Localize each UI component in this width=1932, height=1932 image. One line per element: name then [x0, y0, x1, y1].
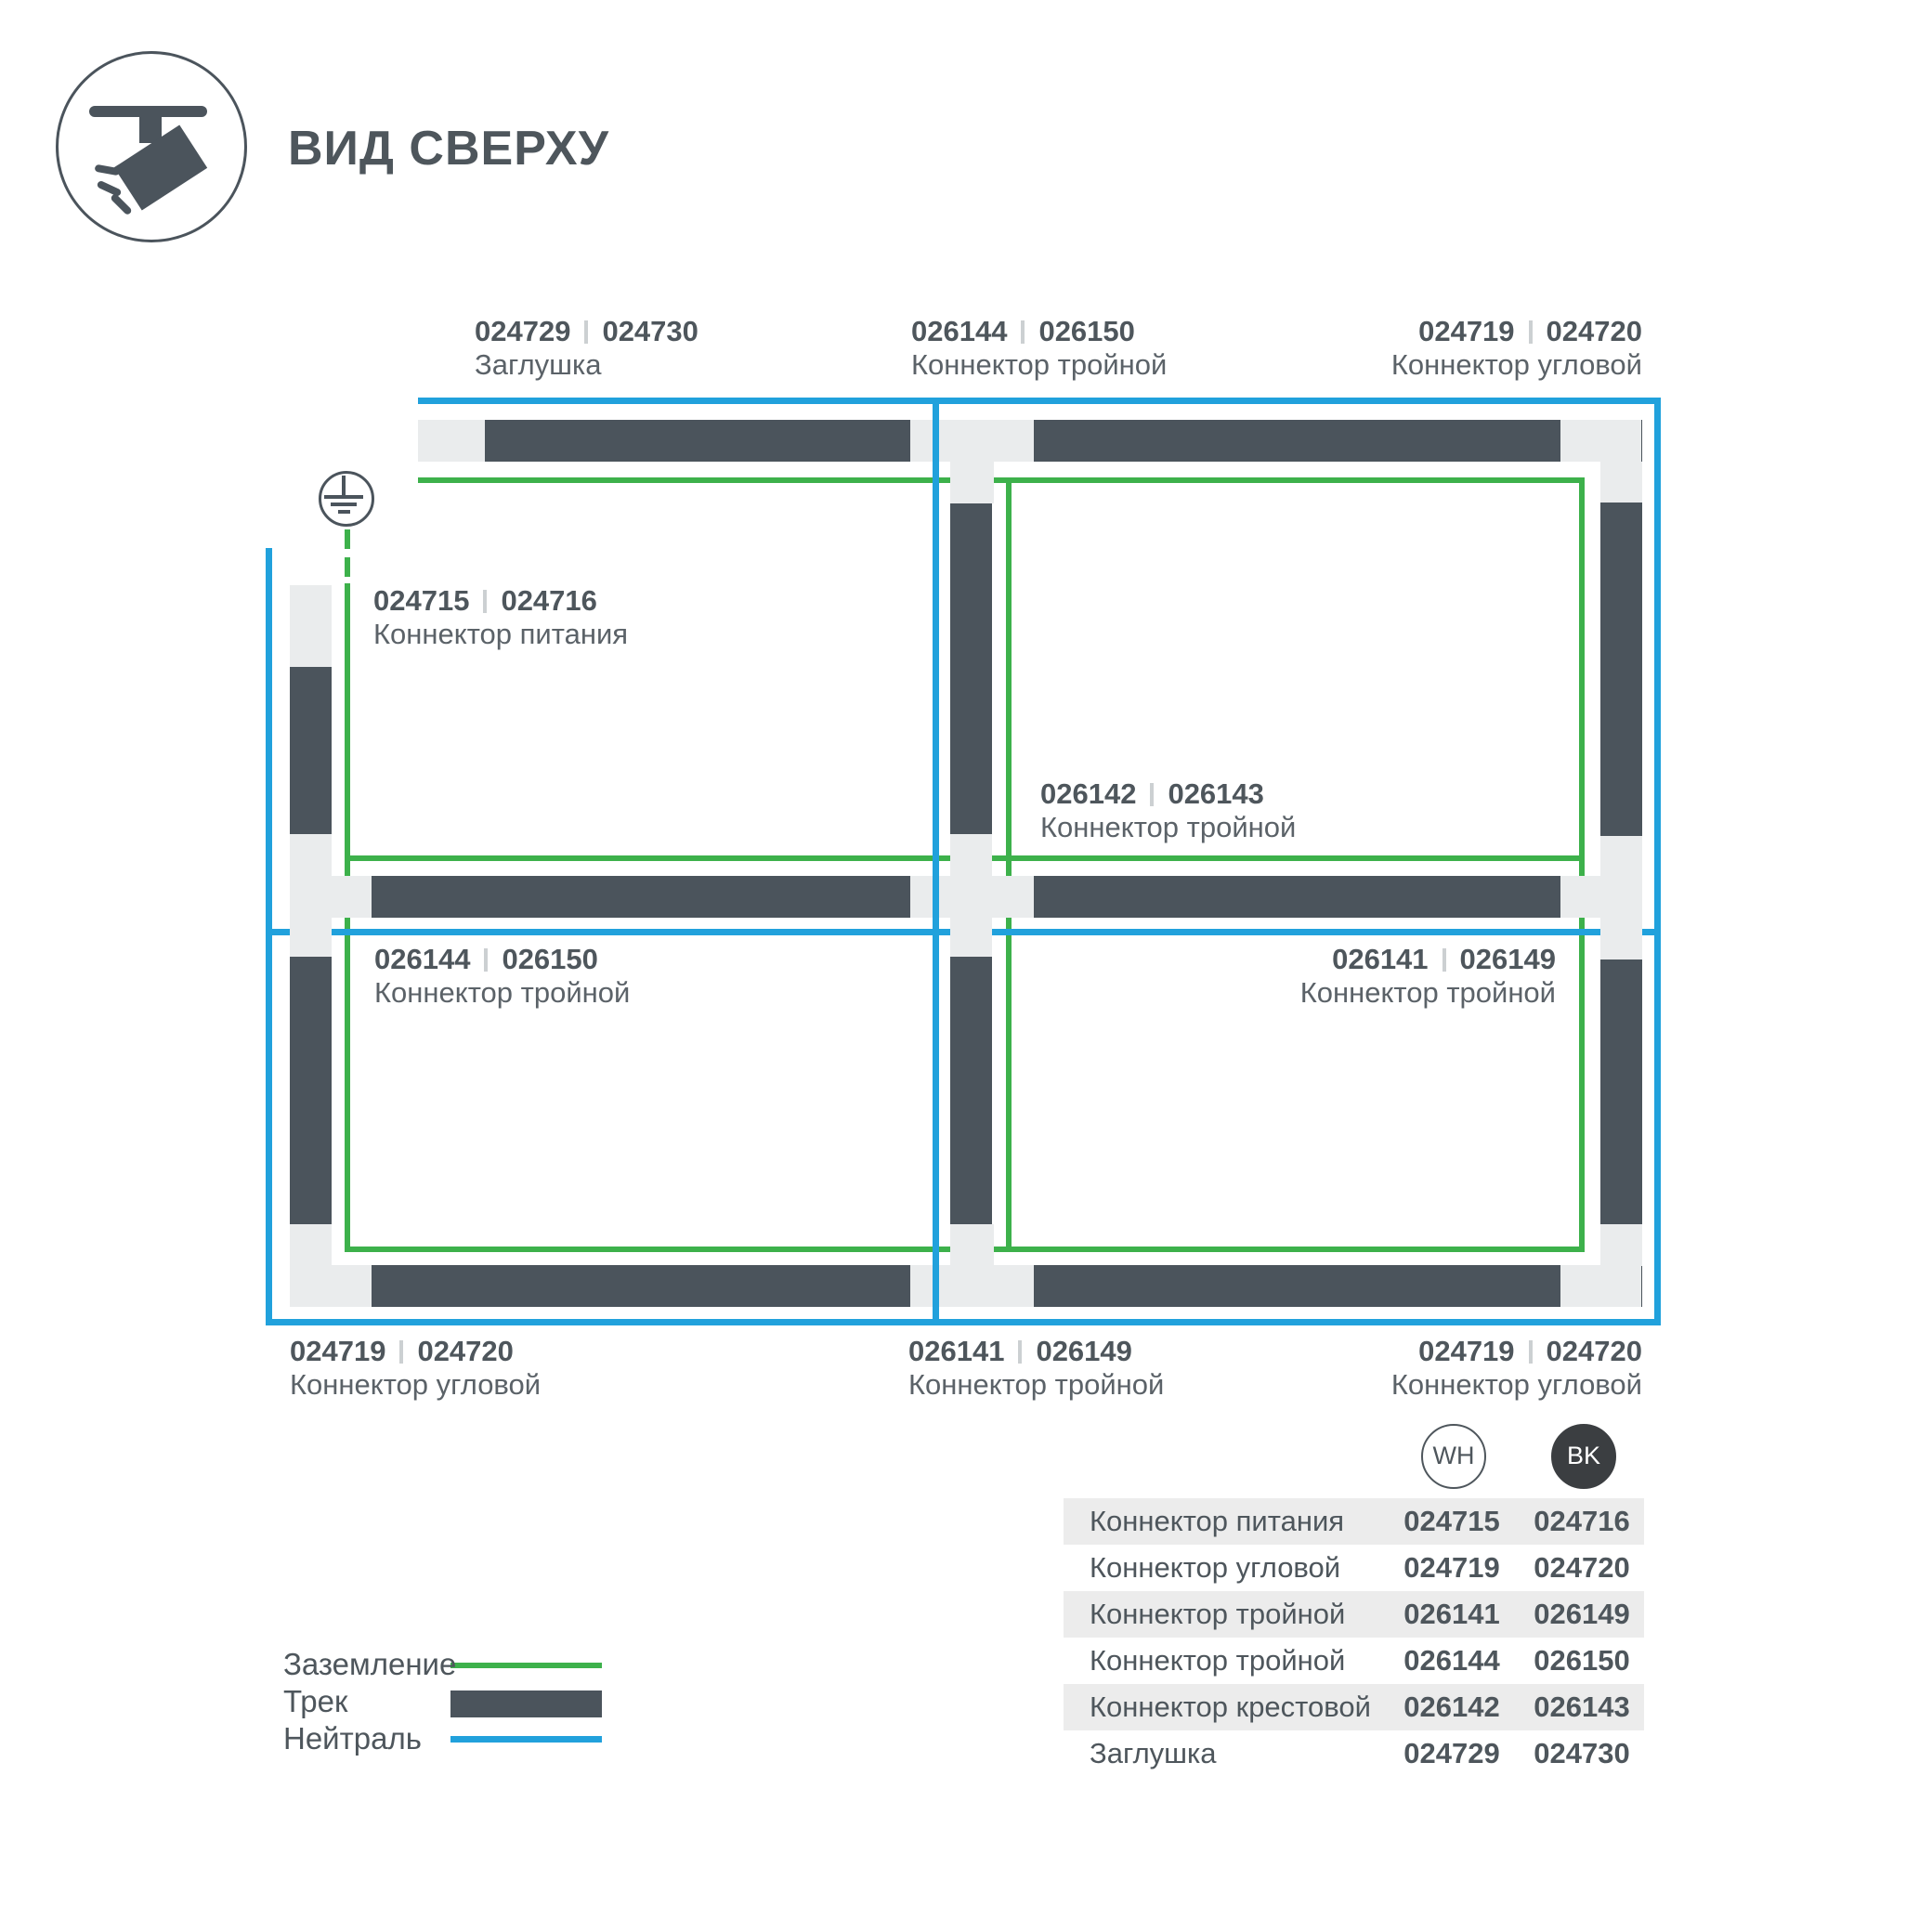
icon-spot-head — [114, 125, 207, 211]
label-tee-bottom: 026141026149 Коннектор тройной — [908, 1336, 1164, 1401]
connector-tee-mid-left — [290, 834, 332, 957]
neutral-line-left — [266, 548, 272, 1325]
connector-corner-top-right — [1560, 420, 1641, 462]
label-corner-bottom-right: 024719024720 Коннектор угловой — [1391, 1336, 1642, 1401]
connector-tee-bottom — [910, 1265, 1034, 1307]
ground-symbol-bar — [324, 495, 363, 499]
label-separator — [1442, 948, 1446, 972]
connector-corner-bottom-right — [1560, 1265, 1641, 1307]
neutral-line-right — [1654, 398, 1661, 1325]
ground-line-top — [418, 477, 1585, 483]
connector-corner-bottom-right-leg — [1600, 1224, 1642, 1266]
label-separator — [1529, 1340, 1533, 1364]
table-row: Коннектор питания 024715 024716 — [1064, 1498, 1644, 1545]
neutral-line-top — [418, 398, 1661, 404]
connector-corner-bottom-left — [290, 1265, 372, 1307]
connector-tee-bottom-stem — [950, 1224, 994, 1265]
label-separator — [483, 590, 487, 613]
label-separator — [1018, 1340, 1022, 1364]
table-row: Коннектор тройной 026144 026150 — [1064, 1638, 1644, 1684]
table-row: Коннектор крестовой 026142 026143 — [1064, 1684, 1644, 1730]
connector-tee-mid-right — [1600, 836, 1642, 959]
neutral-line-center — [933, 398, 939, 1325]
legend-swatch-ground — [450, 1663, 602, 1668]
label-cross: 026142026143 Коннектор тройной — [1040, 778, 1296, 843]
ground-line-left — [345, 583, 350, 1252]
connector-cross-horizontal — [910, 876, 1034, 918]
label-tee-mid-left: 026144026150 Коннектор тройной — [374, 944, 630, 1009]
ground-symbol-bar — [338, 510, 350, 514]
legend-swatch-track — [450, 1690, 602, 1717]
ground-line-right — [1579, 477, 1585, 1252]
label-separator — [584, 320, 588, 344]
icon-light-ray — [110, 193, 133, 216]
label-separator — [1021, 320, 1025, 344]
legend-label-neutral: Нейтраль — [283, 1721, 422, 1756]
table-row: Заглушка 024729 024730 — [1064, 1730, 1644, 1777]
connector-tee-mid-right-arm — [1560, 876, 1600, 918]
label-separator — [1150, 783, 1154, 806]
table-row: Коннектор угловой 024719 024720 — [1064, 1545, 1644, 1591]
label-corner-top-right: 024719024720 Коннектор угловой — [1391, 316, 1642, 381]
connector-tee-top — [910, 420, 1034, 462]
connector-endcap-top — [418, 420, 485, 462]
legend-label-track: Трек — [283, 1684, 347, 1719]
table-row: Коннектор тройной 026141 026149 — [1064, 1591, 1644, 1638]
page: ВИД СВЕРХУ 02 — [0, 0, 1932, 1932]
connector-power-feed — [290, 585, 332, 667]
color-badge-white: WH — [1421, 1424, 1486, 1489]
connector-corner-bottom-left-leg — [290, 1224, 332, 1266]
label-tee-top: 026144026150 Коннектор тройной — [911, 316, 1167, 381]
label-separator — [1529, 320, 1533, 344]
connector-corner-top-right-leg — [1600, 462, 1642, 503]
label-separator — [484, 948, 488, 972]
ground-symbol-bar — [331, 503, 357, 506]
ground-dashed-lead — [345, 529, 350, 583]
neutral-line-bottom — [266, 1319, 1661, 1325]
track-light-icon — [56, 51, 247, 242]
connector-tee-mid-left-arm — [332, 876, 372, 918]
ground-symbol — [319, 471, 374, 527]
label-tee-mid-right: 026141026149 Коннектор тройной — [1300, 944, 1556, 1009]
label-endcap-top: 024729024730 Заглушка — [475, 316, 698, 381]
legend-label-ground: Заземление — [283, 1647, 456, 1682]
icon-light-ray — [97, 180, 123, 198]
ground-line-center — [1006, 477, 1012, 1252]
page-title: ВИД СВЕРХУ — [288, 121, 609, 176]
legend-swatch-neutral — [450, 1736, 602, 1743]
color-badge-black: BK — [1551, 1424, 1616, 1489]
label-power-feed: 024715024716 Коннектор питания — [373, 585, 628, 650]
label-separator — [399, 1340, 403, 1364]
connector-tee-top-stem — [950, 462, 994, 503]
label-corner-bottom-left: 024719024720 Коннектор угловой — [290, 1336, 541, 1401]
